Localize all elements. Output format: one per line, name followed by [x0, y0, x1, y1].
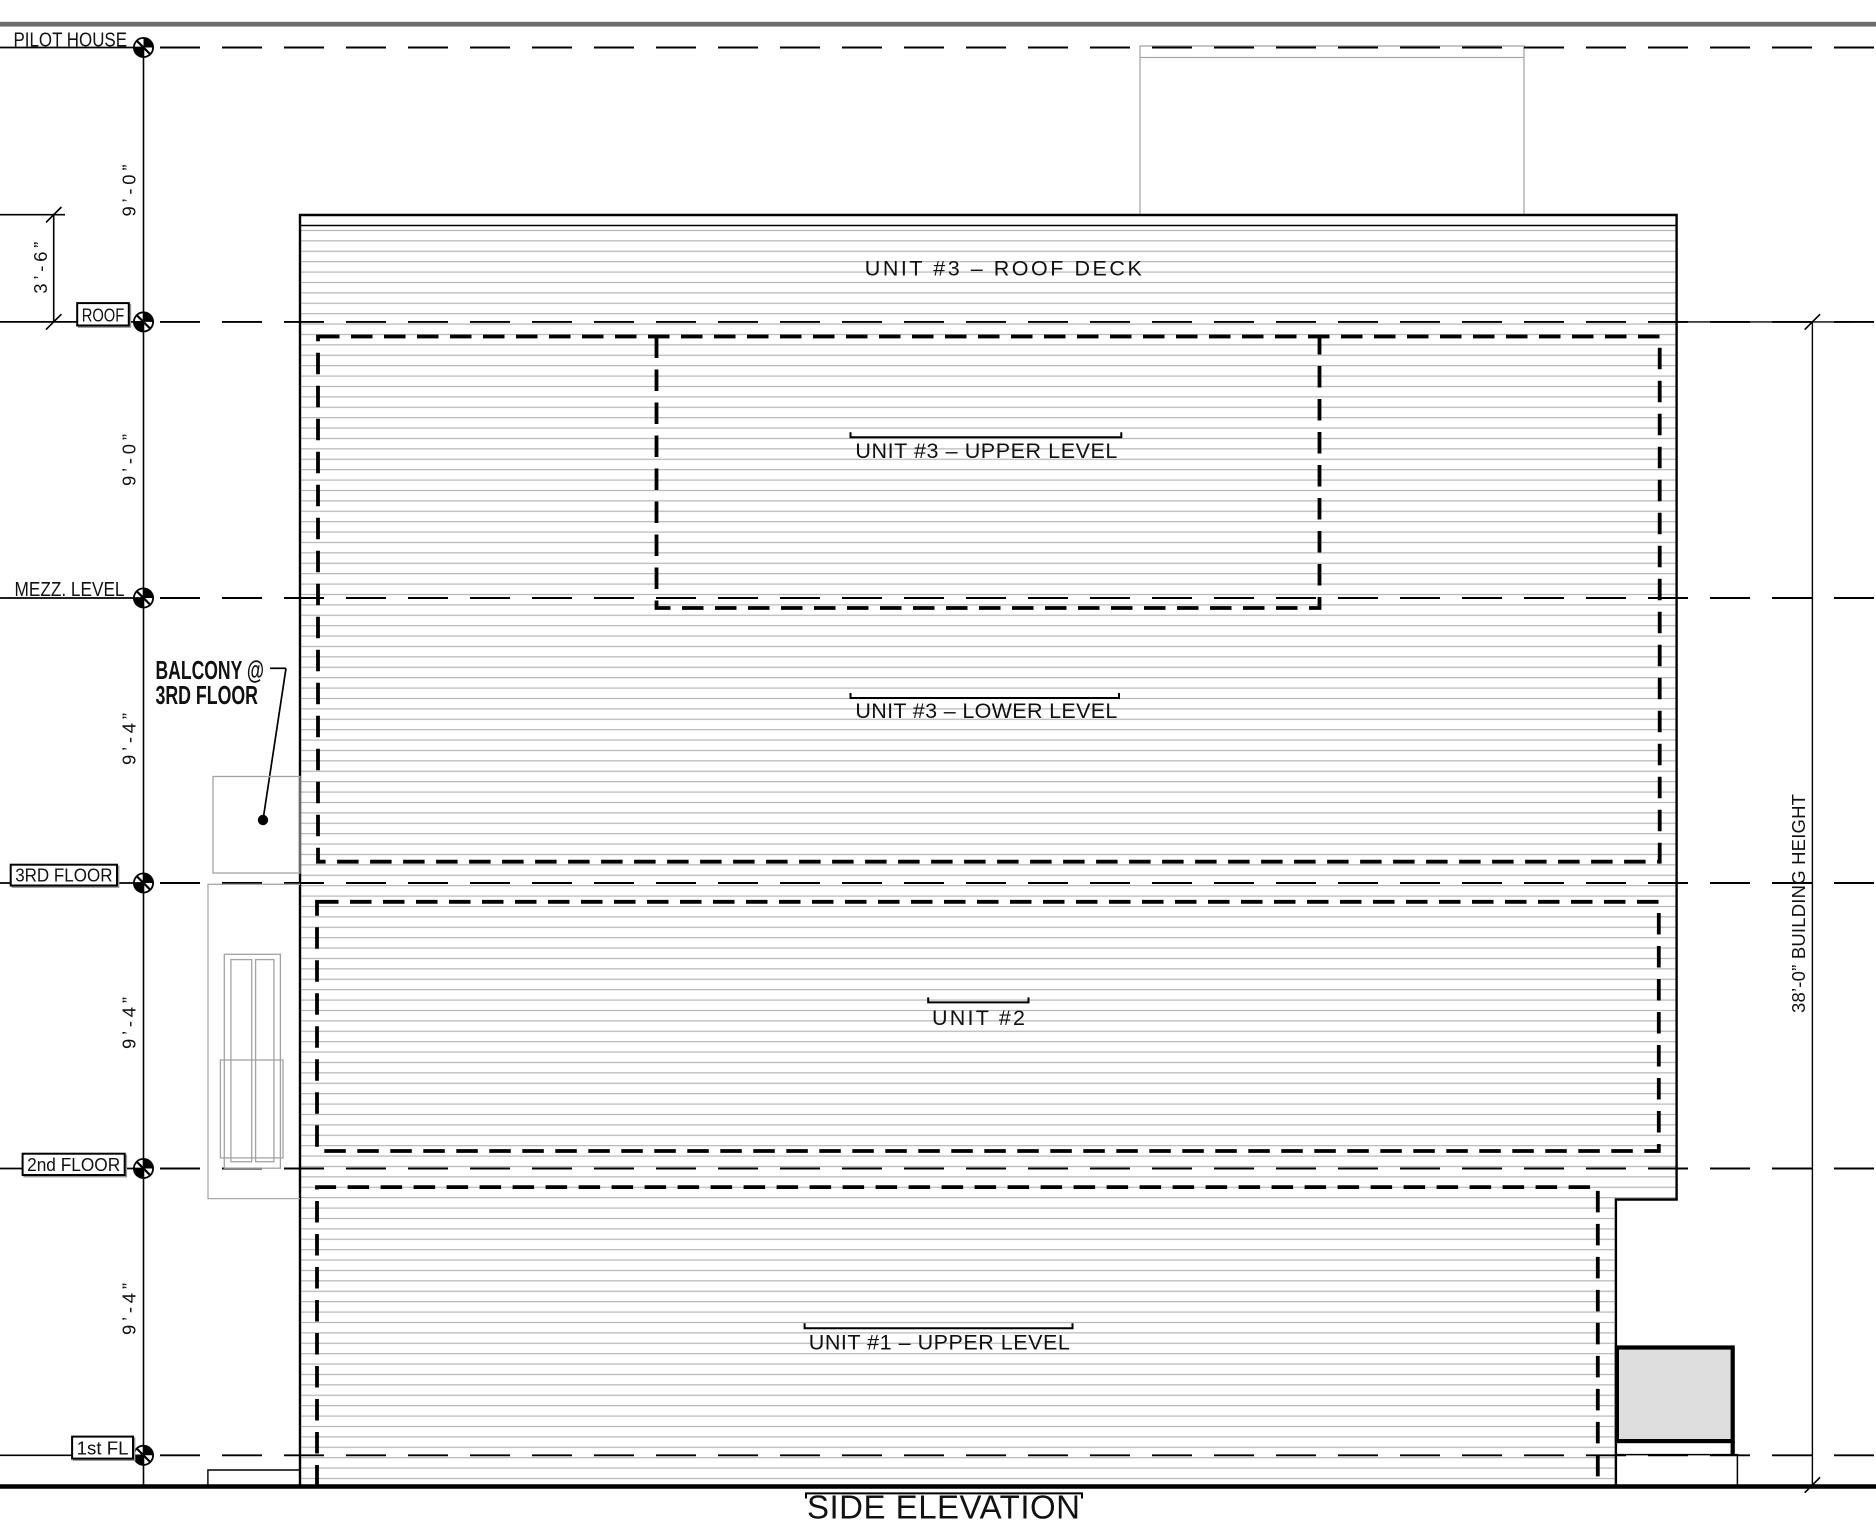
svg-text:3RD FLOOR: 3RD FLOOR [15, 865, 112, 886]
svg-text:BALCONY @: BALCONY @ [156, 657, 265, 685]
svg-text:PILOT HOUSE: PILOT HOUSE [14, 29, 128, 51]
svg-text:1st FL: 1st FL [77, 1438, 129, 1459]
svg-text:2nd FLOOR: 2nd FLOOR [27, 1154, 120, 1175]
svg-text:SIDE ELEVATION: SIDE ELEVATION [807, 1489, 1080, 1526]
svg-text:UNIT #3 – UPPER LEVEL: UNIT #3 – UPPER LEVEL [855, 439, 1117, 463]
svg-text:MEZZ. LEVEL: MEZZ. LEVEL [15, 579, 125, 601]
svg-text:UNIT #1 – UPPER LEVEL: UNIT #1 – UPPER LEVEL [809, 1330, 1070, 1354]
svg-text:3RD FLOOR: 3RD FLOOR [156, 682, 259, 710]
svg-text:38’-0” BUILDING HEIGHT: 38’-0” BUILDING HEIGHT [1788, 794, 1809, 1013]
svg-text:UNIT #3 – ROOF DECK: UNIT #3 – ROOF DECK [865, 257, 1143, 281]
svg-text:ROOF: ROOF [82, 305, 125, 326]
svg-text:UNIT #3 – LOWER LEVEL: UNIT #3 – LOWER LEVEL [855, 699, 1117, 723]
